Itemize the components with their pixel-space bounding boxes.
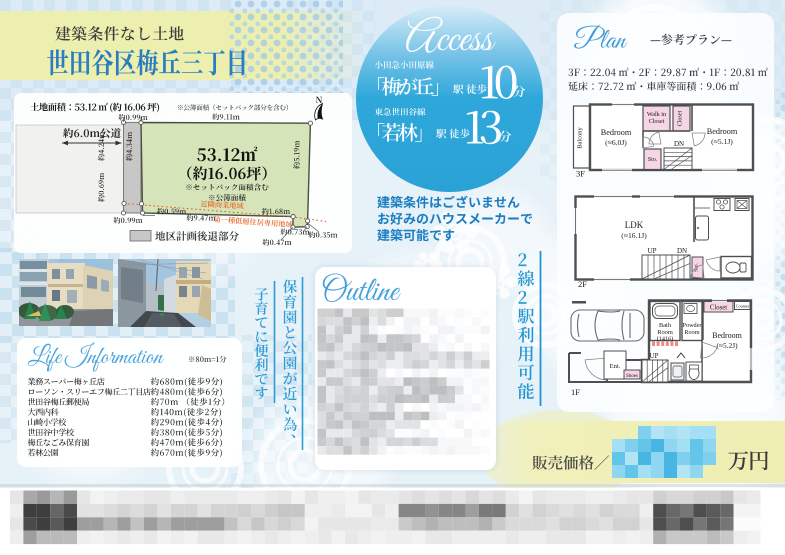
svg-text:(≈16.1J): (≈16.1J)	[621, 231, 647, 240]
svg-text:DN: DN	[674, 140, 684, 148]
svg-text:UP: UP	[650, 352, 659, 360]
svg-text:Room: Room	[684, 329, 699, 336]
svg-text:(≈6.0J): (≈6.0J)	[605, 138, 627, 147]
svg-text:(1416): (1416)	[657, 336, 674, 343]
svg-text:Closet: Closet	[649, 118, 665, 125]
svg-text:Walk in: Walk in	[647, 111, 666, 118]
svg-text:UP: UP	[648, 247, 657, 255]
svg-text:Bath: Bath	[659, 322, 672, 329]
svg-text:Bedroom: Bedroom	[707, 127, 738, 136]
svg-text:Bedroom: Bedroom	[712, 331, 743, 340]
svg-text:3F: 3F	[576, 169, 585, 179]
svg-text:Sto.: Sto.	[648, 157, 658, 163]
svg-text:(≈5.2J): (≈5.2J)	[716, 341, 738, 350]
svg-text:1F: 1F	[571, 387, 580, 397]
svg-text:Closet: Closet	[677, 110, 684, 126]
svg-text:Bedroom: Bedroom	[601, 128, 632, 137]
svg-text:Counter: Counter	[736, 303, 750, 308]
svg-text:2F: 2F	[578, 279, 587, 289]
svg-text:Ent.: Ent.	[610, 363, 621, 370]
svg-text:DN: DN	[677, 247, 687, 255]
svg-text:Balcony: Balcony	[577, 127, 584, 149]
svg-text:(≈5.1J): (≈5.1J)	[711, 137, 733, 146]
svg-text:Powder: Powder	[683, 322, 702, 329]
svg-text:Shoes: Shoes	[626, 374, 638, 379]
svg-text:Closet: Closet	[710, 305, 727, 312]
svg-text:LDK: LDK	[625, 220, 644, 230]
